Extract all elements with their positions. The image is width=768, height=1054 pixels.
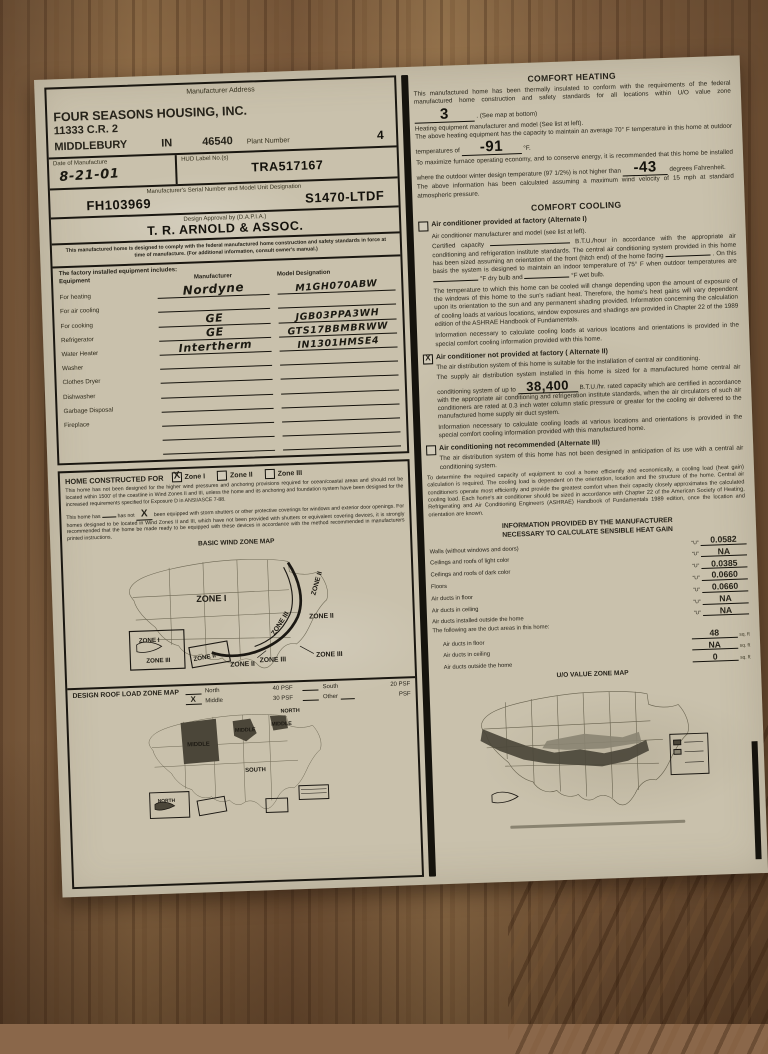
equipment-row-label: Dishwasher bbox=[63, 391, 153, 402]
alternate-iii-checkbox bbox=[426, 446, 436, 456]
alt1-p2: Certified capacity B.T.U./hour in accord… bbox=[432, 233, 737, 285]
alternate-ii-checkbox: X bbox=[423, 354, 433, 364]
duct-value: 48 bbox=[691, 628, 737, 639]
zone-ii-label: Zone II bbox=[230, 471, 253, 479]
dry-bulb-blank bbox=[433, 279, 478, 282]
roof-map-south-label: SOUTH bbox=[245, 767, 266, 774]
u-marker: "U" bbox=[693, 575, 700, 581]
wind-map-alaska-zone-i-label: ZONE I bbox=[139, 637, 160, 645]
uo-zone-value: 3 bbox=[440, 105, 449, 122]
wind-p2-pre: This home has bbox=[66, 514, 100, 521]
design-temp-unit: degrees Fahrenheit. bbox=[669, 164, 726, 173]
roof-other-label: Other bbox=[323, 694, 338, 701]
sizing-paragraph: To determine the required capacity of eq… bbox=[427, 464, 745, 519]
alt1-p2f-text: °F dry bulb and bbox=[480, 274, 523, 282]
date-of-manufacture-value: 8-21-01 bbox=[59, 166, 120, 185]
heat-gain-value: 0.0660 bbox=[702, 582, 748, 593]
has-blank bbox=[102, 516, 116, 517]
roof-map-north-label: NORTH bbox=[280, 708, 299, 715]
zone-i-checkbox: X bbox=[171, 472, 181, 482]
orientation-blank bbox=[666, 254, 711, 257]
roof-map-alaska-north-label: NORTH bbox=[158, 798, 176, 805]
model-designation-value: S1470-LTDF bbox=[305, 188, 385, 206]
wind-map-hawaii-zone-ii-label: ZONE II bbox=[193, 652, 217, 663]
plant-number-value: 4 bbox=[295, 128, 390, 145]
certified-capacity-blank bbox=[490, 243, 570, 247]
heating-p1b-text: . (See map at bottom) bbox=[476, 110, 537, 119]
zone-i-label: Zone I bbox=[184, 473, 205, 481]
alternate-i-checkbox bbox=[418, 221, 428, 231]
wet-bulb-blank bbox=[524, 276, 569, 279]
zone-ii-option: Zone II bbox=[217, 470, 253, 481]
alt1-p3: The temperature to which this home can b… bbox=[434, 277, 739, 329]
design-temp-blank: -43 bbox=[622, 159, 668, 177]
heat-gain-value: NA bbox=[701, 546, 747, 557]
u-marker: "U" bbox=[693, 599, 700, 605]
alt2-p2: The supply air distribution system insta… bbox=[437, 364, 742, 422]
design-roof-load-title: DESIGN ROOF LOAD ZONE MAP bbox=[72, 689, 179, 700]
company-city: MIDDLEBURY bbox=[54, 139, 127, 154]
duct-value: NA bbox=[692, 640, 738, 651]
heat-gain-label: Air ducts in floor bbox=[431, 595, 473, 602]
alternate-i-title: Air conditioner provided at factory (Alt… bbox=[431, 216, 587, 228]
has-not-mark: X bbox=[141, 508, 148, 519]
company-state: IN bbox=[161, 137, 172, 149]
heat-gain-value: NA bbox=[702, 593, 748, 604]
zone-i-mark: X bbox=[172, 472, 181, 481]
roof-south-psf: 20 PSF bbox=[390, 681, 410, 688]
certified-capacity-label: Certified capacity bbox=[432, 242, 484, 251]
uo-zone-blank: 3 bbox=[414, 105, 475, 123]
right-column: COMFORT HEATING This manufactured home h… bbox=[413, 64, 758, 877]
outdoor-temp-blank: -91 bbox=[461, 138, 522, 156]
equipment-row-label: Garbage Disposal bbox=[63, 405, 153, 416]
has-not-blank: X bbox=[136, 509, 152, 521]
wind-map-zone-i-label: ZONE I bbox=[196, 593, 227, 604]
roof-map-middle-west-label: MIDDLE bbox=[187, 741, 210, 748]
wind-map-gulf-zone-ii-label: ZONE II bbox=[230, 661, 255, 669]
equipment-row-label: For heating bbox=[60, 291, 150, 302]
outdoor-temp-value: -91 bbox=[480, 138, 504, 156]
roof-other-psf: PSF bbox=[399, 691, 411, 697]
design-roof-load-zone-map: MIDDLE MIDDLE MIDDLE NORTH SOUTH NORTH bbox=[74, 697, 414, 827]
equipment-row-label: Water Heater bbox=[61, 348, 151, 359]
roof-north-psf: 40 PSF bbox=[273, 685, 293, 692]
equipment-row-label: For cooking bbox=[60, 320, 150, 331]
roof-map-middle-central-label: MIDDLE bbox=[235, 727, 256, 734]
equipment-row-label: For air cooling bbox=[60, 306, 150, 317]
roof-middle-label: Middle bbox=[205, 698, 223, 705]
hud-data-plate: Manufacturer Address FOUR SEASONS HOUSIN… bbox=[34, 55, 768, 897]
u-marker: "U" bbox=[692, 551, 699, 557]
design-temp-value: -43 bbox=[633, 159, 657, 177]
equipment-row-label: Washer bbox=[62, 362, 152, 373]
heat-gain-label: Ceilings and roofs of dark color bbox=[430, 570, 510, 579]
duct-label: Air ducts in ceiling bbox=[443, 652, 490, 660]
equipment-row-label: Clothes Dryer bbox=[62, 376, 152, 387]
alt1-p2e-text: temperatures are bbox=[688, 258, 737, 267]
heat-gain-label: Ceilings and roofs of light color bbox=[430, 558, 509, 567]
duct-label: Air ducts outside the home bbox=[444, 663, 513, 671]
u-marker: "U" bbox=[694, 610, 701, 616]
heat-gain-label: Floors bbox=[431, 584, 447, 591]
duct-value: 0 bbox=[692, 651, 738, 662]
heat-gain-label: Air ducts installed outside the home bbox=[432, 617, 524, 626]
zone-iii-checkbox bbox=[264, 469, 274, 479]
serial-number-value: FH103969 bbox=[86, 196, 151, 213]
alternate-ii-mark: X bbox=[424, 354, 432, 362]
wind-map-atlantic-zone-ii-label: ZONE II bbox=[309, 613, 334, 621]
u-marker: "U" bbox=[692, 563, 699, 569]
uo-value-zone-map bbox=[443, 673, 748, 825]
duct-label: Air ducts in floor bbox=[443, 640, 485, 647]
u-marker: "U" bbox=[691, 540, 698, 546]
wind-roof-box: HOME CONSTRUCTED FOR X Zone I Zone II Zo… bbox=[58, 459, 424, 889]
heat-gain-label: Air ducts in ceiling bbox=[432, 606, 479, 614]
heat-gain-value: 0.0660 bbox=[702, 570, 748, 581]
zone-iii-label: Zone III bbox=[278, 470, 303, 478]
equipment-row-label: Fireplace bbox=[64, 419, 154, 430]
manufacturer-identity-box: Manufacturer Address FOUR SEASONS HOUSIN… bbox=[44, 75, 409, 465]
company-zip: 46540 bbox=[202, 135, 233, 148]
wind-map-gulf-zone-iii-label: ZONE III bbox=[260, 656, 287, 664]
heat-gain-value: 0.0582 bbox=[700, 534, 746, 545]
wind-map-alaska-zone-iii-label: ZONE III bbox=[146, 657, 171, 665]
left-column: Manufacturer Address FOUR SEASONS HOUSIN… bbox=[44, 75, 424, 889]
equipment-row-label: Refrigerator bbox=[61, 334, 151, 345]
wind-map-zone-iii-right-label: ZONE III bbox=[316, 651, 343, 659]
duct-unit: sq. ft bbox=[739, 632, 750, 637]
zone-i-option: X Zone I bbox=[171, 472, 205, 483]
u-marker: "U" bbox=[693, 587, 700, 593]
roof-middle-psf: 30 PSF bbox=[273, 695, 293, 702]
plant-number-label: Plant Number bbox=[247, 137, 290, 145]
roof-map-middle-east-label: MIDDLE bbox=[271, 721, 292, 728]
heat-gain-value: NA bbox=[703, 605, 749, 616]
equipment-table: For heating Nordyne M1GH070ABW For air c… bbox=[53, 276, 407, 458]
basic-wind-zone-map: ZONE I ZONE II ZONE III ZONE II ZONE II … bbox=[68, 540, 409, 688]
wind-map-east-zone-ii-label: ZONE II bbox=[310, 570, 324, 596]
roof-north-label: North bbox=[205, 688, 220, 695]
duct-unit: sq. ft bbox=[740, 656, 751, 661]
duct-unit: sq. ft bbox=[740, 644, 751, 649]
roof-middle-mark: X bbox=[190, 695, 196, 704]
roof-middle-blank: X bbox=[185, 695, 201, 705]
btu-capacity-value: 38,400 bbox=[526, 377, 569, 393]
alt1-p2g-text: °F wet bulb. bbox=[571, 271, 605, 279]
zone-iii-option: Zone III bbox=[264, 468, 302, 479]
zone-ii-checkbox bbox=[217, 471, 227, 481]
wind-p2-mid: has not bbox=[117, 512, 134, 519]
equipment-row-label bbox=[65, 440, 155, 444]
heat-gain-value: 0.0385 bbox=[701, 558, 747, 569]
roof-south-label: South bbox=[323, 684, 339, 691]
outdoor-temp-unit: °F. bbox=[523, 145, 531, 152]
